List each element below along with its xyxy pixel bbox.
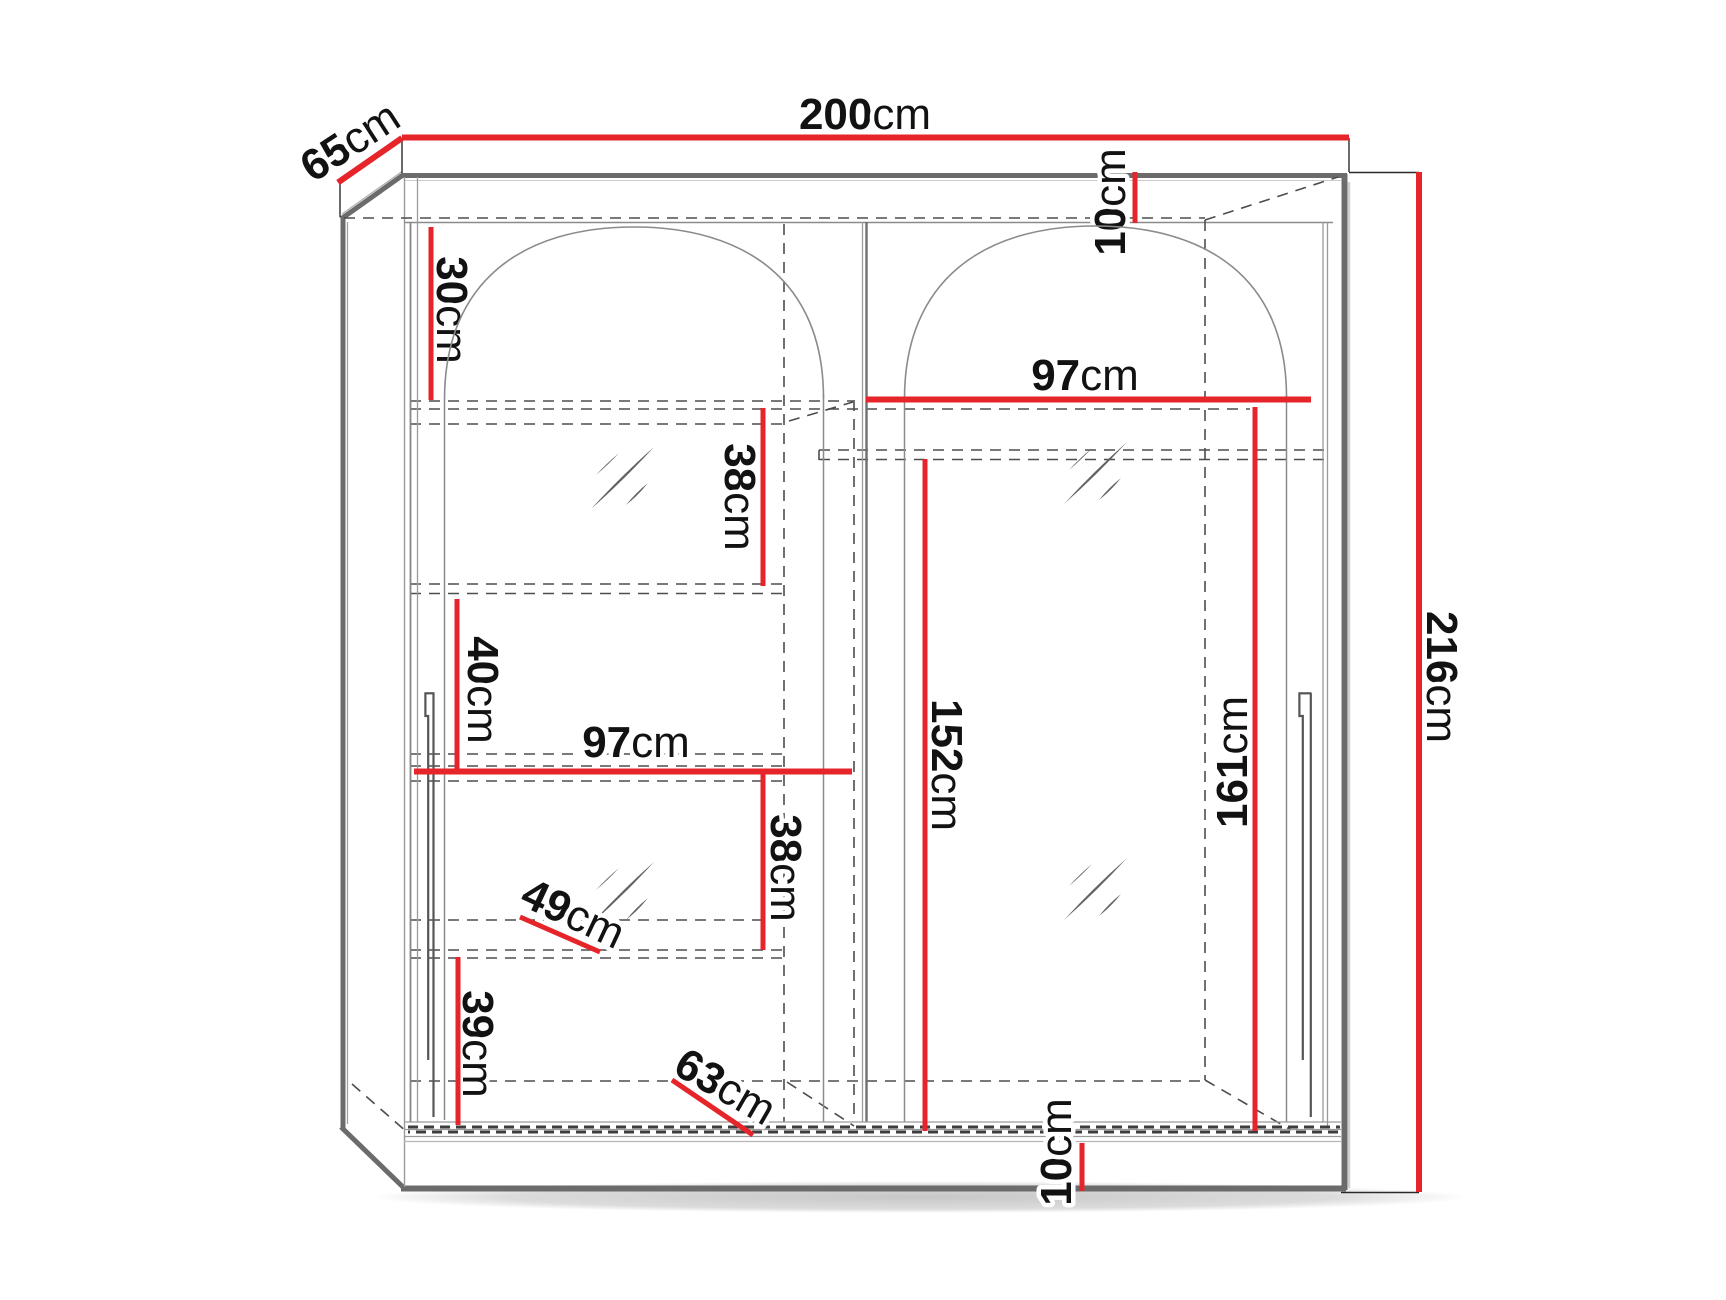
svg-text:10cm: 10cm (1032, 1098, 1081, 1206)
svg-text:200cm: 200cm (799, 90, 931, 139)
svg-text:30cm: 30cm (427, 256, 476, 364)
svg-text:10cm: 10cm (1086, 148, 1135, 256)
svg-text:40cm: 40cm (458, 636, 507, 744)
svg-text:161cm: 161cm (1208, 696, 1257, 828)
svg-text:38cm: 38cm (715, 443, 764, 551)
svg-text:216cm: 216cm (1417, 611, 1466, 743)
svg-text:152cm: 152cm (922, 699, 971, 831)
svg-text:97cm: 97cm (582, 718, 690, 767)
svg-text:97cm: 97cm (1031, 351, 1139, 400)
svg-text:38cm: 38cm (761, 814, 810, 922)
